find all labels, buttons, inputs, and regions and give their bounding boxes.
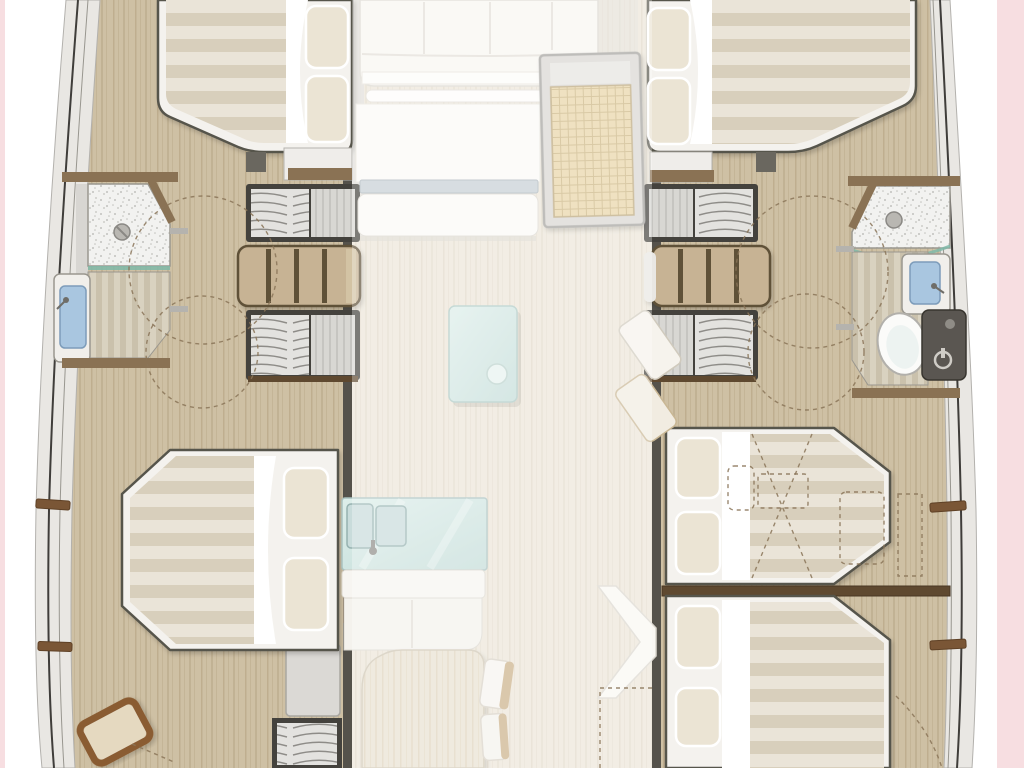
pillow xyxy=(676,688,720,746)
floor-plan-stage: Catamaran yacht interior floor plan - to… xyxy=(0,0,1024,768)
starboard-shelves xyxy=(644,246,770,306)
pink-strip-right xyxy=(997,0,1024,768)
dark-cabinet xyxy=(922,310,966,380)
bed-divider-shelf xyxy=(662,586,950,596)
bridge-deck-ghost-overlay xyxy=(352,0,652,768)
bathroom-sink xyxy=(60,286,86,348)
starboard-aft-bed-forward xyxy=(666,428,890,584)
wall-stub-lower xyxy=(836,324,854,330)
flush-icon-stem xyxy=(941,348,945,358)
starboard-stairs-forward xyxy=(644,184,758,242)
dark-cabinet-knob xyxy=(945,319,955,329)
bathroom-sink xyxy=(910,262,940,304)
bathroom-wall-top xyxy=(848,176,960,186)
pillow xyxy=(648,8,690,70)
port-stairs-aft xyxy=(246,310,360,382)
port-aft-cabin-bed xyxy=(122,450,338,650)
port-stairs-forward xyxy=(246,184,360,242)
floor-plan-svg: Catamaran yacht interior floor plan - to… xyxy=(0,0,1024,768)
shower-drain xyxy=(886,212,902,228)
pillow xyxy=(284,558,328,630)
pillow xyxy=(648,78,690,144)
port-shelves xyxy=(238,246,360,306)
pillow xyxy=(676,438,720,498)
wall-stub-upper xyxy=(836,246,854,252)
pillow xyxy=(676,512,720,574)
wall-stub-upper xyxy=(170,228,188,234)
teak-shower-floor xyxy=(88,272,170,358)
pillow xyxy=(306,76,348,142)
starboard-aft-bed-aft xyxy=(666,596,890,768)
pillow xyxy=(284,468,328,538)
bathroom-wall-bottom xyxy=(852,388,960,398)
companionway-panel xyxy=(286,644,340,716)
wall-stub-lower xyxy=(170,306,188,312)
bathroom-wall-bottom xyxy=(62,358,170,368)
pink-strip-left xyxy=(0,0,5,768)
pillow xyxy=(306,6,348,68)
pillow xyxy=(676,606,720,668)
bathroom-wall-top xyxy=(62,172,178,182)
